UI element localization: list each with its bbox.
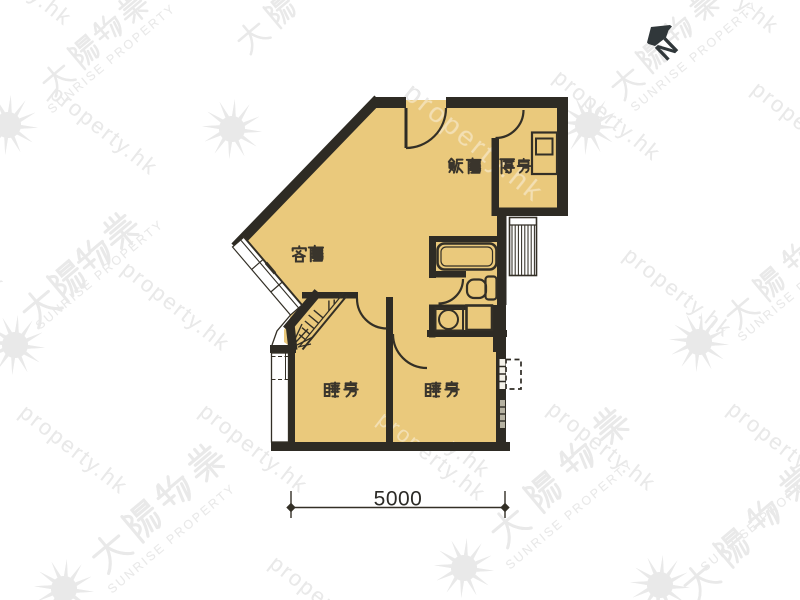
svg-text:5000: 5000	[374, 488, 423, 511]
